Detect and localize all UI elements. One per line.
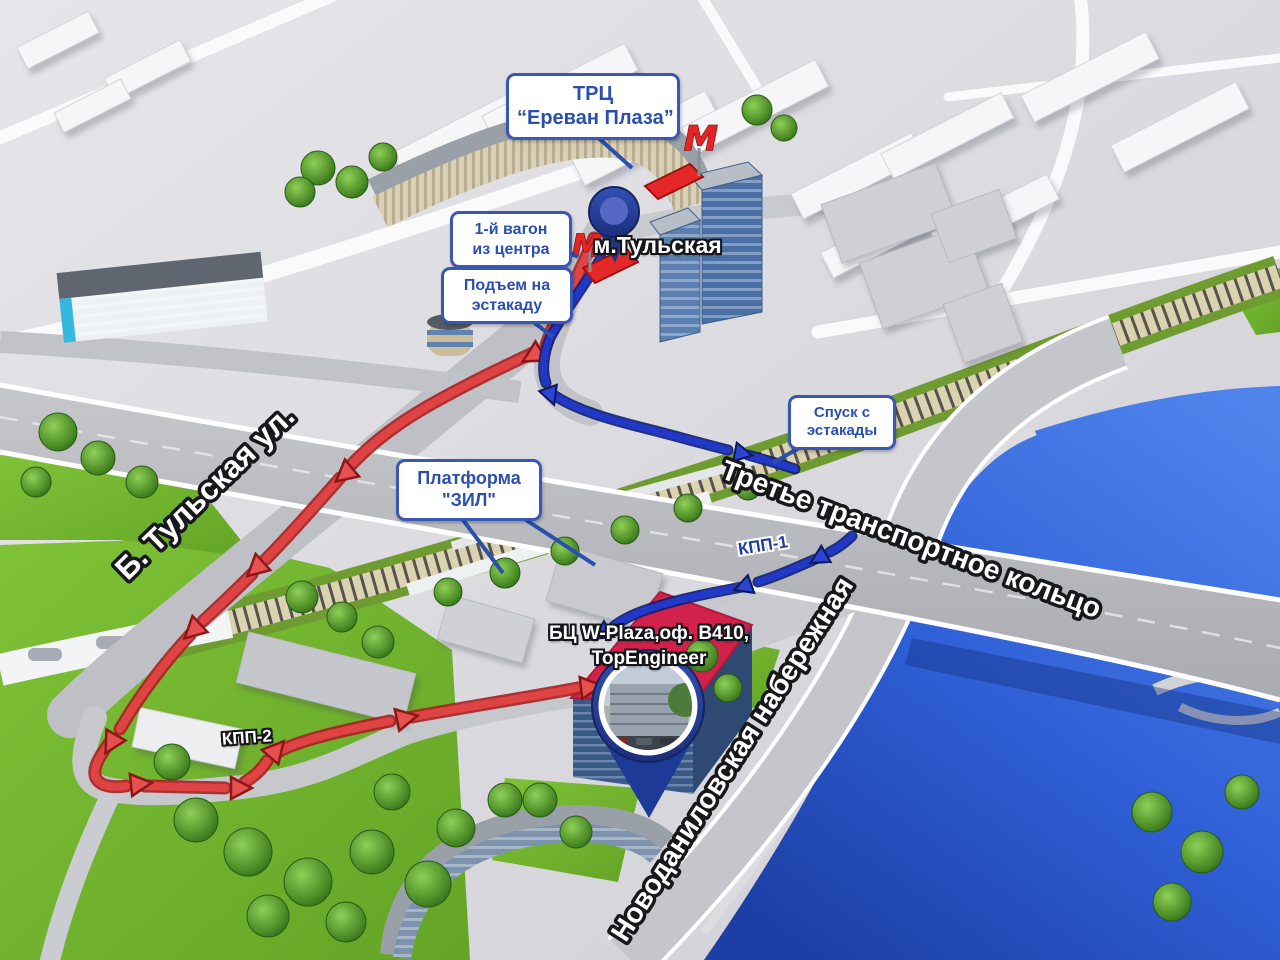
callout-platform-zil-line2: "ЗИЛ"	[407, 490, 531, 512]
callout-first-wagon-line1: 1-й вагон	[461, 220, 561, 240]
callout-first-wagon-line2: из центра	[461, 240, 561, 260]
metro-m-icon: М	[684, 119, 718, 159]
callout-first-wagon: 1-й вагон из центра	[450, 211, 572, 268]
callout-platform-zil-line1: Платформа	[407, 468, 531, 490]
checkpoint2-label: КПП-2	[221, 726, 272, 749]
callout-erevan-plaza: ТРЦ “Ереван Плаза”	[506, 73, 680, 140]
map-canvas: М М Б. Тульская ул. Третье транспортное …	[0, 0, 1280, 960]
callout-ramp-up-line1: Подъем на	[452, 276, 562, 296]
metro-station-label: м.Тульская	[575, 232, 740, 259]
callout-ramp-up-line2: эстакаду	[452, 296, 562, 316]
callout-erevan-plaza-line2: “Ереван Плаза”	[517, 106, 669, 130]
map-art: М М Б. Тульская ул. Третье транспортное …	[0, 0, 1280, 960]
office-label: БЦ W-Plaza,оф. В410, TopEngineer	[538, 622, 760, 671]
callout-erevan-plaza-line1: ТРЦ	[517, 82, 669, 106]
callout-platform-zil: Платформа "ЗИЛ"	[396, 459, 542, 521]
office-label-line2: TopEngineer	[592, 648, 707, 669]
office-label-line1: БЦ W-Plaza,оф. В410,	[549, 623, 749, 644]
callout-ramp-up: Подъем на эстакаду	[441, 267, 573, 324]
callout-ramp-down-line1: Спуск с	[799, 404, 885, 422]
callout-ramp-down: Спуск с эстакады	[788, 395, 896, 450]
callout-ramp-down-line2: эстакады	[799, 422, 885, 440]
